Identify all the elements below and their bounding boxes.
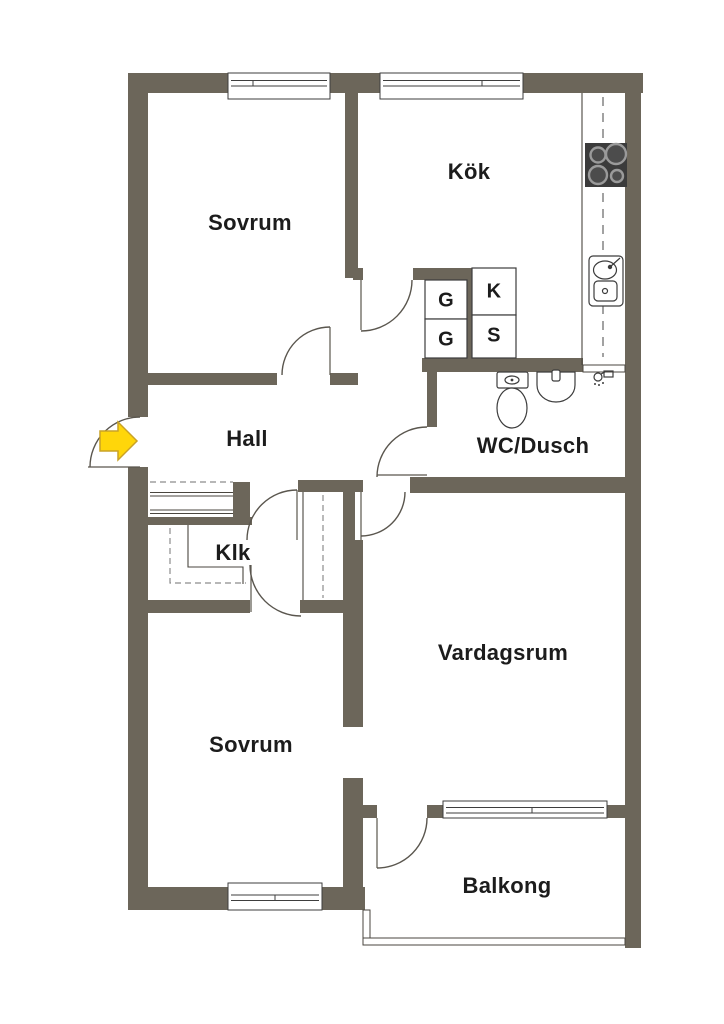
cabinet-label-s: S: [487, 325, 501, 348]
room-label-sovrum-top: Sovrum: [208, 210, 292, 236]
cabinet-label-g2: G: [438, 329, 454, 352]
door-balcony: [377, 818, 427, 868]
door-wc: [377, 427, 427, 477]
kitchen-counter: [582, 93, 603, 365]
stove-icon: [585, 143, 627, 187]
window-kitchen: [380, 73, 523, 99]
room-label-klk: Klk: [215, 540, 250, 566]
room-label-vardagsrum: Vardagsrum: [438, 640, 568, 666]
door-bedroom-top: [282, 327, 330, 375]
wardrobe: [303, 492, 323, 600]
window-bedroom-bottom: [228, 883, 322, 910]
window-livingroom: [443, 801, 607, 818]
toilet-icon: [497, 372, 528, 428]
door-kitchen: [361, 280, 412, 331]
cabinet-label-g1: G: [438, 290, 454, 313]
door-livingroom: [355, 492, 405, 540]
room-label-hall: Hall: [226, 426, 268, 452]
door-bedroom-bottom: [250, 565, 301, 616]
floor-plan-drawing: [0, 0, 724, 1024]
entrance-arrow-icon: [100, 422, 137, 460]
wash-basin-icon: [537, 370, 575, 402]
kitchen-sink-icon: [589, 256, 623, 306]
shower-icon: [594, 371, 613, 386]
room-label-wc-dusch: WC/Dusch: [477, 433, 589, 459]
cabinet-label-k: K: [487, 281, 502, 304]
floor-plan: Sovrum Kök Hall WC/Dusch Klk Vardagsrum …: [0, 0, 724, 1024]
closet-shelving: [150, 482, 246, 584]
door-klk: [247, 490, 297, 540]
balcony-railing: [363, 910, 625, 945]
room-label-kok: Kök: [448, 159, 490, 185]
room-label-balkong: Balkong: [463, 873, 552, 899]
window-bedroom-top: [228, 73, 330, 99]
room-label-sovrum-bottom: Sovrum: [209, 732, 293, 758]
